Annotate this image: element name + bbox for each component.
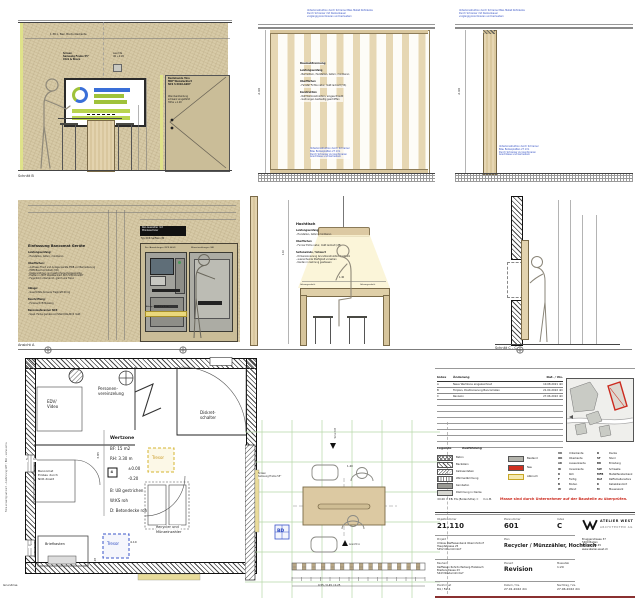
- ceiling-c2: [455, 27, 633, 29]
- room-pv: Personen- vereinzelung: [98, 386, 124, 396]
- dim-d-v1: [108, 210, 109, 340]
- detail-plan: [245, 420, 440, 598]
- legend-states: Bestand Neu Abbruch: [508, 454, 538, 481]
- detail-dim-string: 0.55 / 0.45 / 0.25: [318, 584, 340, 587]
- site-plan: [566, 378, 634, 442]
- dim-c: [465, 30, 466, 173]
- legend-title: Legende: [437, 447, 451, 451]
- index-a: A: [437, 383, 453, 386]
- titleblock-rule1: [435, 512, 635, 513]
- wertzone-rh: RH: 3.30 m: [110, 456, 132, 461]
- einfassung-s2-lines: - Aufmass Front und Anlage Geräte EWB vo…: [28, 267, 108, 281]
- index-table: Index Änderung Dat. / Vis. A Neue Wertzo…: [437, 376, 563, 448]
- finish-b: B: UB gestrichen: [110, 488, 143, 493]
- legend-daemmung-decke: Dämmung in Decke: [456, 491, 482, 494]
- dim-v2: [138, 105, 139, 170]
- aenderung-col-header: Änderung: [453, 376, 533, 380]
- dim-f3: [582, 215, 583, 344]
- briefkasten-label: Briefkasten: [45, 542, 65, 547]
- index-c: C: [437, 395, 453, 398]
- atelier-west-logo-icon: [582, 519, 598, 530]
- titleblock-rule4: [435, 559, 575, 560]
- dim-385: 3.85: [97, 452, 101, 459]
- legend-abbruch: Abbruch: [527, 475, 538, 478]
- stool-right-leg1: [118, 125, 119, 170]
- einfassung-s3-line: - Geschlitzte Konsole Tragkraft 60 kg: [28, 292, 70, 295]
- logo-sub: ARCHITEKTEN AG: [600, 525, 633, 529]
- projekt-value: Umbau Raiffeisenbank Oberrohrdorf Haupts…: [437, 542, 484, 552]
- atm-led: [178, 261, 181, 264]
- atm-keypad: [150, 276, 166, 286]
- projekt-label: Projekt: [437, 538, 446, 541]
- abbr-m: M: [597, 488, 609, 493]
- lamella-top-rail: [270, 30, 428, 34]
- dim-f1: [558, 200, 559, 344]
- level-low: -0.20: [128, 476, 138, 481]
- door-note2: Wandverkleidung schwarz eingefärbt Höhe …: [168, 96, 210, 104]
- objekt-label: Objektnummer: [437, 518, 457, 521]
- dim-b-text: 2.60: [258, 88, 262, 95]
- door-note: Bestehende Türe MDF Weisslackiert NCS S …: [168, 78, 210, 86]
- bar-green1: [94, 94, 124, 98]
- lamella-s1-line: - Bemustern, Herstellen, liefern, montie…: [300, 74, 349, 77]
- dim-e-v: [288, 200, 289, 344]
- dat-col-header: Dat. / Vis.: [533, 376, 563, 380]
- datum-unit: m ü.M.: [483, 498, 492, 501]
- abbrev-left: UKUnterkante OKOberkante AKAussenkante I…: [558, 452, 586, 494]
- index-a-text: Neue Wertzone eingezeichnet: [453, 383, 533, 386]
- swatch-bestand: [508, 456, 524, 462]
- planart-label: Planart: [504, 562, 513, 565]
- detail-dim-140: 1.40: [347, 465, 353, 468]
- dim-f4: [596, 215, 597, 344]
- shelf-note: Ablage 60 x 1.5 x 5 cm: [146, 306, 169, 308]
- lamella-wall-edge: [250, 196, 258, 346]
- view-label-ansicht-a: Ansicht A: [18, 343, 34, 348]
- plannr-value: 601: [504, 522, 519, 530]
- dim-e-v-text: 1.10: [283, 250, 286, 255]
- swatch-backstein: [437, 462, 453, 468]
- nachtrag-value: 27.06.2022 dm: [557, 588, 580, 592]
- dim-218: 2.18: [94, 558, 97, 564]
- ground-line-a: [18, 170, 232, 171]
- detail-marker-bottom: Ansicht A: [349, 544, 360, 547]
- ceiling-b2: [258, 27, 435, 29]
- plannr-label: Plannummer: [504, 518, 521, 521]
- lamella-bottom-note: Unterkonstruktion durch Schreiner Bzw. B…: [310, 148, 350, 159]
- index-c-date: 27.06.2022 dm: [533, 395, 563, 398]
- lamella-wall: [270, 30, 430, 174]
- indexfield-value: C: [557, 522, 562, 530]
- massstab-value: 1:20: [557, 566, 564, 570]
- index-a-date: 10.08.2021 dm: [533, 383, 563, 386]
- machine-left-caption: Rec./Auszahlungen (NCR 6634): [145, 247, 175, 249]
- swatch-kalksandstein: [437, 469, 453, 475]
- view-label-schnitt-c: Schnitt C - C: [495, 346, 517, 351]
- index-b-date: 21.04.2022 dm: [533, 389, 563, 392]
- grid-markers: [40, 344, 540, 356]
- bancomat-note: Bancomat Einbau durch NCR direkt: [38, 470, 58, 482]
- slat-top-note: Unterkonstruktion durch Schreiner Bzw. M…: [459, 10, 584, 18]
- atm-screen: [150, 258, 174, 275]
- legend-sub: Ausführung: [462, 447, 482, 451]
- ground-line-f: [495, 344, 620, 345]
- swatch-beton: [437, 455, 453, 461]
- titleblock-top-rule: [435, 368, 635, 369]
- single-slat: [483, 30, 497, 175]
- legend-backstein: Backstein: [456, 463, 469, 466]
- dim-d-top3: [140, 219, 236, 220]
- index-col-header: Index: [437, 376, 453, 380]
- tag-17l: 17: [28, 544, 32, 548]
- dim-line-top: [25, 38, 230, 39]
- level-high: ±0.00: [128, 466, 140, 471]
- atm-slot: [152, 289, 180, 292]
- bauherr-label: Bauherr: [437, 562, 447, 565]
- datum-note: ±0.00 = P.B. EG (Bodenhöhe) =: [437, 498, 478, 501]
- room-edv: EDV/ Video: [47, 399, 58, 409]
- slat-fixing: [483, 30, 495, 34]
- tag-2: 2: [26, 458, 28, 462]
- abbr-w-label: Wand: [569, 488, 576, 493]
- table-leg-right: [383, 295, 390, 346]
- bd-floorbox-label: BD: [277, 529, 284, 535]
- stool1-leg1: [315, 318, 316, 344]
- slat-bottom-note: Unterkonstruktion durch Schreiner Bzw. B…: [499, 146, 539, 157]
- index-b-text: Türplan, Positionierung Bancomaten: [453, 389, 533, 392]
- detail-marker-top: Schnitt B: [335, 428, 338, 438]
- titleblock-rule5: [435, 581, 575, 582]
- wertzone-bf: BF: 15 m2: [110, 446, 130, 451]
- swatch-neu: [508, 465, 524, 471]
- hochtisch-s1-line: - Herstellen, liefern, montieren: [296, 234, 331, 237]
- floor-b: [258, 173, 435, 182]
- legend-materials: Beton Backstein Kalksandstein Wärmedämmu…: [437, 454, 482, 496]
- lamella-s2-line: - Fenster Fichte natur, matt lackiert (V…: [300, 85, 346, 88]
- lamp: [113, 64, 122, 72]
- index-c-text: Revision: [453, 395, 533, 398]
- datum-value: 27.01.2022 dm: [504, 588, 527, 592]
- bauherr-value: Raiffeisen Rohrdorferberg-Fislisbach Bre…: [437, 566, 484, 576]
- ceiling-b1: [258, 24, 435, 25]
- tresor-blue-label: Tresor: [107, 541, 119, 546]
- tresor-yellow-label: Tresor: [152, 455, 164, 460]
- dim-d-top2: [28, 212, 236, 213]
- plan-label: Plan: [504, 538, 510, 541]
- plan-side-note: Folie einseitig satiniert – Ausführung G…: [6, 432, 9, 512]
- red-note: Masse sind durch Unternehmer auf der Bau…: [500, 497, 627, 502]
- table-pedestal: [87, 120, 115, 172]
- machine-tag-sub: Typ NCR SelfServ 84: [141, 238, 164, 241]
- bar-green2: [94, 100, 127, 104]
- person-silhouette-section: [526, 254, 562, 346]
- door-swing-lines: [165, 75, 228, 170]
- machine-right-caption: Münzeinzahlungen (SB): [191, 247, 214, 249]
- dim-d-v2: [116, 210, 117, 340]
- gehrung-left: Gehrungsschnitt: [300, 284, 315, 286]
- person-silhouette: [36, 76, 80, 172]
- swatch-daemmung-decke: [437, 490, 453, 496]
- finish-w: W:KS roh: [110, 498, 128, 503]
- swatch-waermedaemmung: [437, 476, 453, 482]
- planart-value: Revision: [504, 566, 533, 573]
- indexfield-label: Index: [557, 518, 564, 521]
- ceiling-line-upper: [18, 20, 232, 21]
- dim-d-v3: [124, 210, 125, 340]
- bar-wide1: [72, 109, 130, 113]
- plan-linework: [25, 356, 255, 594]
- wertzone-title: Wertzone: [110, 436, 134, 442]
- recycler-label: Recycler und Münzeinzahler: [156, 525, 181, 534]
- titleblock-rule3: [435, 535, 575, 536]
- titleblock-bottom-rule: [435, 596, 635, 598]
- swatch-kernbeton: [437, 483, 453, 489]
- dim-410: 4.10: [130, 541, 137, 545]
- door-tag-4: 4: [111, 470, 113, 475]
- architect-address: Bruggerstrasse 37 5400 Baden 056 204 45 …: [582, 538, 608, 551]
- lamp-note: Leuchte UK +2.20: [113, 53, 143, 59]
- logo-name: ATELIER WEST: [600, 519, 633, 523]
- legend-beton: Beton: [456, 456, 464, 459]
- dim-d-top1: [28, 205, 236, 206]
- bar-blue: [94, 88, 130, 92]
- floor-c: [455, 173, 633, 182]
- legend-neu: Neu: [527, 466, 532, 469]
- tag-15: 15: [33, 458, 37, 462]
- lamella-s3-lines: - Rahmenkonstruktion, eingeschraubt - Ge…: [300, 96, 343, 102]
- wall-edge-strip: [20, 23, 23, 170]
- dim-b: [265, 30, 266, 173]
- room-diskret: Diskret- schalter: [200, 410, 216, 420]
- screen-note: Screen Samsung Frame 55" Click & Share: [63, 53, 103, 61]
- lamella-title: Raumabtrennung: [300, 62, 325, 65]
- format-value: 84 / 59.4: [437, 588, 450, 592]
- einfassung-s5-line: - Spez. Farbe gemäss Architekt RAL/NCS m…: [28, 314, 80, 317]
- titleblock-rule2: [435, 514, 635, 515]
- swatch-abbruch: [508, 474, 524, 480]
- drawing-sheet: 1.38 ü. Bez. Bordunterkante Leuchte UK +…: [0, 0, 635, 600]
- lamella-top-note: Unterkonstruktion durch Schreiner Bzw. M…: [307, 10, 432, 18]
- einfassung-s1-line: - Herstellen, liefern, montieren: [28, 256, 63, 259]
- person-silhouette-seated: [325, 242, 371, 346]
- legend-kalksandstein: Kalksandstein: [456, 470, 474, 473]
- hochtisch-title: Hochtisch: [296, 222, 315, 227]
- legend-waermedaemmung: Wärmedämmung: [456, 477, 478, 480]
- atm-left: [145, 252, 187, 332]
- dim-text-ceiling: 1.38 ü. Bez. Bordunterkante: [50, 33, 87, 36]
- view-label-schnitt-b: Schnitt B: [18, 174, 34, 179]
- dim-c-text: 2.60: [458, 88, 462, 95]
- machine-tag-text: Rec-Auszahler mit Münzwechsler: [140, 226, 186, 234]
- plan-label: Grundriss: [3, 584, 17, 588]
- abbr-m-label: Mauerwerk: [609, 488, 623, 493]
- dim-v1: [146, 78, 147, 170]
- shelf: [145, 311, 187, 317]
- person-silhouette-ansicht: [186, 250, 228, 342]
- objekt-value: 21.110: [437, 522, 464, 530]
- door-edge-strip: [160, 75, 163, 170]
- dim-f2: [570, 200, 571, 344]
- legend-bestand: Bestand: [527, 457, 538, 460]
- einfassung-s4-line: - Folienschrift Messing: [28, 303, 54, 306]
- index-b: B: [437, 389, 453, 392]
- einfassung-title: Einfassung Bancomat Geräte: [28, 244, 85, 249]
- table-leg-left: [300, 295, 307, 346]
- pendant-cord: [343, 196, 344, 227]
- ledge-dashes: [87, 114, 115, 118]
- ceiling-c1: [455, 24, 633, 25]
- abbr-w: W: [558, 488, 569, 493]
- detail-screen-note: Screen Samsung Frame 55": [258, 473, 281, 479]
- abbrev-right: DDecke STSturz BRBrüstung SWSchwelle MFB…: [597, 452, 632, 494]
- machine-tag: Rec-Auszahler mit Münzwechsler: [140, 226, 186, 236]
- finish-d: D: Betondecke roh: [110, 508, 147, 513]
- stool-right-leg2: [131, 125, 132, 170]
- legend-kernbeton: Kernbeton: [456, 484, 469, 487]
